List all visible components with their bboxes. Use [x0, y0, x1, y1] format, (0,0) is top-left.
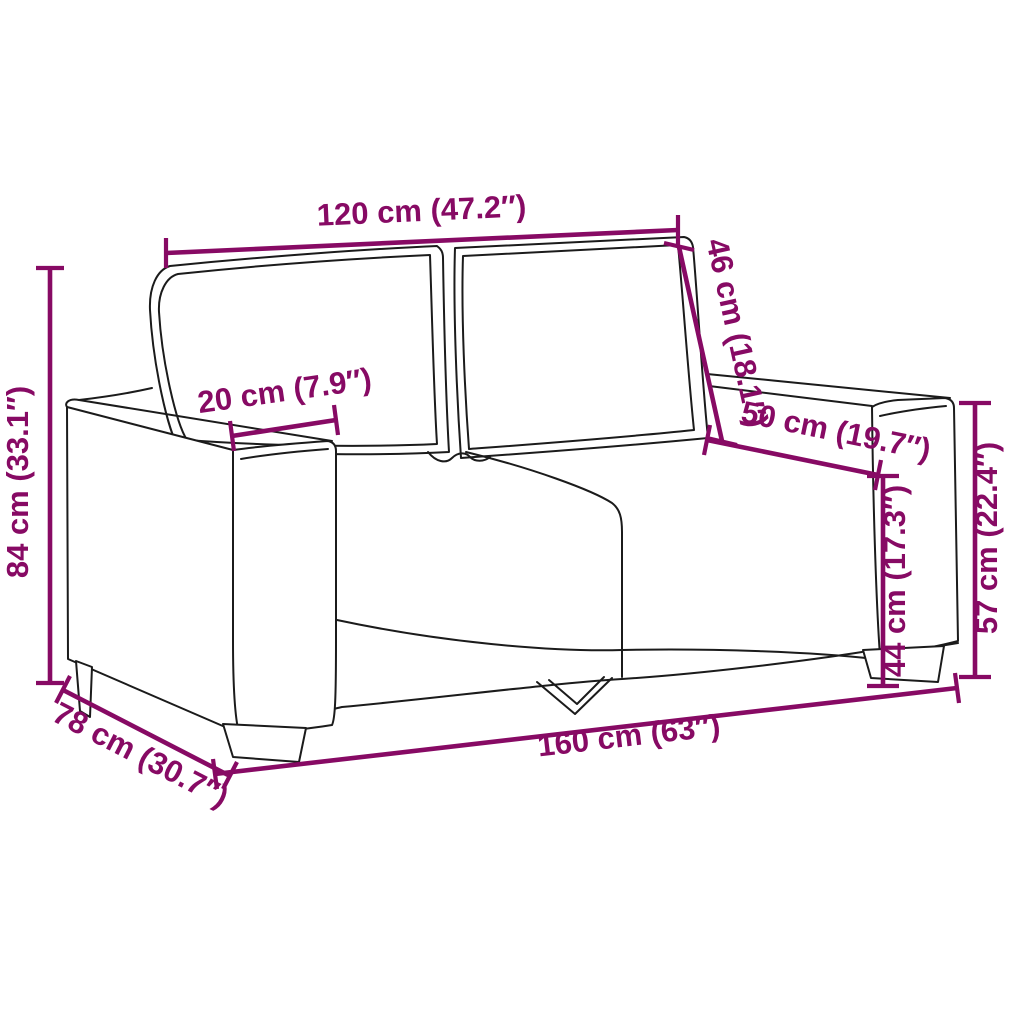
back-cushion-right [454, 237, 708, 458]
dim-armrest-height-label: 57 cm (22.4″) [969, 442, 1004, 634]
seat-front-edge [337, 620, 875, 659]
sofa-line-art [66, 237, 958, 762]
left-front-leg [223, 724, 306, 762]
dim-total-width-label: 160 cm (63″) [536, 708, 723, 764]
back-cushion-left [150, 246, 449, 454]
dim-armrest-height: 57 cm (22.4″) [959, 403, 1004, 677]
left-armrest-panel [233, 441, 336, 733]
back-frame-left-edge [79, 388, 152, 400]
dim-backrest-width-label: 120 cm (47.2″) [316, 188, 527, 232]
sofa-dimension-diagram: 120 cm (47.2″) 46 cm (18.1″) 84 cm (33.1… [0, 0, 1024, 1024]
dim-total-height: 84 cm (33.1″) [0, 268, 64, 683]
dim-total-height-label: 84 cm (33.1″) [0, 386, 35, 578]
diagram-canvas: 120 cm (47.2″) 46 cm (18.1″) 84 cm (33.1… [0, 0, 1024, 1024]
left-armrest-side-face [67, 407, 239, 733]
dim-seat-height-label: 44 cm (17.3″) [877, 485, 912, 677]
